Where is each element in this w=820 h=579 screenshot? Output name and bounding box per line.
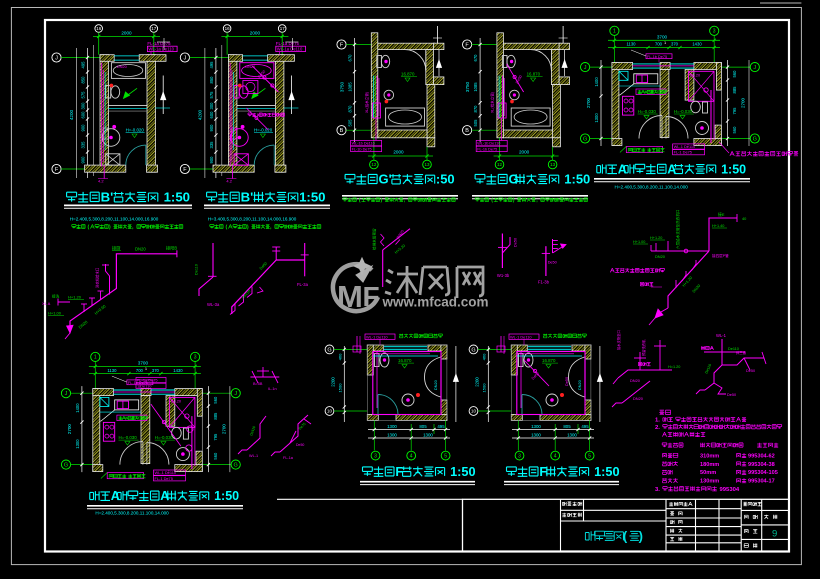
svg-text:4.2: 4.2 [98, 179, 104, 184]
svg-text:1500: 1500 [337, 383, 342, 393]
svg-text:1130: 1130 [107, 368, 117, 373]
svg-text:B0.20: B0.20 [171, 399, 182, 404]
svg-text:De110: De110 [195, 264, 199, 275]
svg-text:870: 870 [348, 105, 353, 113]
svg-text:600: 600 [81, 111, 86, 119]
svg-text:3750: 3750 [340, 81, 345, 92]
svg-text:H=2.400,5.300,8.200,11.100,14.: H=2.400,5.300,8.200,11.100,14.000,16.900 [70, 217, 159, 222]
svg-text:B': B' [101, 190, 114, 205]
svg-text:1:50: 1:50 [564, 172, 590, 187]
svg-text:10: 10 [327, 409, 332, 414]
svg-text:9: 9 [772, 529, 777, 540]
svg-text:预留洗衣机: 预留洗衣机 [641, 339, 646, 356]
svg-text:13: 13 [424, 162, 430, 167]
svg-text:WL-1b De110: WL-1b De110 [477, 142, 500, 146]
svg-text:900: 900 [209, 156, 214, 164]
svg-text:H+1.40: H+1.40 [712, 224, 724, 228]
svg-text:850: 850 [209, 76, 214, 84]
svg-text:接水支管至口: 接水支管至口 [616, 330, 621, 350]
svg-text:六层给水支管至洗衣机口: 六层给水支管至洗衣机口 [675, 209, 680, 249]
svg-text:G: G [509, 172, 519, 187]
svg-text:XL(给水立管): XL(给水立管) [490, 92, 495, 113]
svg-text:De50: De50 [548, 261, 557, 265]
svg-text:1300: 1300 [423, 433, 433, 438]
svg-text:FL-3a: FL-3a [297, 282, 309, 287]
svg-text:495: 495 [581, 424, 589, 429]
svg-text:670: 670 [348, 54, 353, 62]
svg-text:2000: 2000 [519, 150, 530, 155]
svg-text:H+1.00: H+1.00 [48, 311, 62, 316]
svg-text:180mm: 180mm [700, 462, 719, 468]
svg-text:WL-1 De110: WL-1 De110 [510, 334, 532, 339]
svg-text:1300: 1300 [387, 433, 397, 438]
svg-text:XL A: XL A [42, 301, 51, 306]
svg-text:2000: 2000 [121, 31, 132, 36]
svg-text:3: 3 [194, 355, 197, 361]
svg-text:(: ( [623, 528, 628, 543]
svg-text:560: 560 [213, 452, 218, 460]
svg-text:1085: 1085 [473, 82, 478, 92]
svg-text:给排水管预留: 给排水管预留 [372, 228, 377, 250]
svg-text:2.: 2. [655, 425, 660, 431]
svg-text:De50: De50 [296, 443, 304, 447]
svg-text:670: 670 [473, 54, 478, 62]
svg-text:J: J [584, 65, 587, 71]
svg-text:G: G [64, 463, 68, 469]
svg-text:2700: 2700 [67, 424, 72, 435]
svg-text:1:50: 1:50 [214, 489, 239, 503]
svg-text:1300: 1300 [567, 433, 577, 438]
svg-text:17: 17 [151, 26, 157, 31]
svg-text:1400: 1400 [75, 403, 80, 413]
svg-text:10: 10 [471, 409, 476, 414]
svg-text:370: 370 [152, 368, 160, 373]
svg-text:WL-1 De110: WL-1 De110 [155, 470, 177, 475]
svg-text:H=-0.020: H=-0.020 [254, 128, 273, 133]
svg-text:G: G [583, 137, 587, 143]
svg-text:1:50: 1:50 [299, 190, 325, 205]
svg-text:460: 460 [337, 353, 342, 360]
svg-text:De50: De50 [746, 369, 755, 373]
svg-text:W1-3b: W1-3b [497, 273, 510, 278]
svg-text:850: 850 [81, 76, 86, 84]
svg-text:2200: 2200 [474, 377, 479, 387]
svg-text:300: 300 [81, 102, 86, 110]
svg-text:H=-0.030: H=-0.030 [674, 109, 693, 114]
svg-text:FL-1b De75: FL-1b De75 [647, 55, 667, 59]
svg-text:FL-1 De75: FL-1 De75 [674, 150, 692, 155]
svg-text:J: J [184, 56, 187, 62]
svg-text:1:50: 1:50 [164, 190, 190, 205]
svg-text:1300: 1300 [594, 113, 599, 123]
svg-text:3: 3 [713, 29, 716, 35]
svg-text:FL-1 De75: FL-1 De75 [155, 476, 173, 481]
svg-text:16.870: 16.870 [401, 72, 415, 77]
svg-text:885: 885 [213, 412, 218, 420]
svg-text:335: 335 [209, 141, 214, 149]
svg-text:495: 495 [81, 61, 86, 69]
svg-text:H+1.20: H+1.20 [650, 236, 662, 240]
svg-text:16: 16 [225, 26, 231, 31]
svg-text:310mm: 310mm [700, 453, 719, 459]
svg-text:505: 505 [348, 119, 353, 127]
svg-text:2200: 2200 [330, 377, 335, 387]
svg-text:DN20: DN20 [655, 254, 666, 259]
svg-text:A: A [160, 489, 169, 503]
svg-text:1430: 1430 [692, 42, 702, 47]
svg-text:1130: 1130 [626, 42, 636, 47]
svg-text:接洗: 接洗 [52, 294, 60, 299]
svg-text:2700: 2700 [741, 97, 746, 108]
svg-text:1: 1 [613, 29, 616, 35]
svg-text:XL(给水立管): XL(给水立管) [364, 92, 369, 113]
svg-text:995304-38: 995304-38 [748, 462, 775, 468]
svg-text:FL-1a: FL-1a [283, 456, 294, 460]
svg-text:1500: 1500 [481, 383, 486, 393]
svg-text:1 De110: 1 De110 [137, 383, 152, 388]
svg-text:WL-3a: WL-3a [207, 302, 220, 307]
svg-text:900: 900 [209, 124, 214, 132]
svg-text:): ) [109, 224, 111, 230]
svg-text:3: 3 [518, 453, 521, 459]
svg-text:16.870: 16.870 [398, 358, 412, 363]
svg-text:M: M [337, 279, 363, 314]
svg-text:795: 795 [213, 433, 218, 441]
svg-text:1:50: 1:50 [450, 464, 476, 479]
svg-text:H=-0.030: H=-0.030 [638, 109, 657, 114]
svg-text:995304-17: 995304-17 [748, 479, 775, 485]
svg-text:3700: 3700 [138, 360, 149, 365]
svg-text:WL-1: WL-1 [249, 454, 258, 458]
svg-text:505: 505 [473, 119, 478, 127]
svg-text:805: 805 [419, 424, 427, 429]
svg-text:A: A [111, 489, 120, 503]
svg-text:12: 12 [371, 162, 377, 167]
svg-text:DN20: DN20 [630, 378, 641, 383]
svg-text:1300: 1300 [531, 433, 541, 438]
svg-text:H=-0.030: H=-0.030 [119, 435, 138, 440]
svg-text:H+1.20: H+1.20 [68, 295, 82, 300]
svg-text:16: 16 [96, 26, 102, 31]
svg-text:): ) [247, 224, 249, 230]
svg-text:WL-1a De110: WL-1a De110 [148, 47, 174, 52]
svg-text:575: 575 [209, 91, 214, 99]
svg-text:995304-105: 995304-105 [748, 470, 778, 476]
svg-text:870: 870 [473, 105, 478, 113]
svg-text:2700: 2700 [222, 424, 227, 435]
svg-text:1430: 1430 [173, 368, 183, 373]
svg-text:C: C [657, 90, 661, 95]
svg-text:900: 900 [81, 124, 86, 132]
svg-text:50mm: 50mm [700, 470, 716, 476]
svg-text:700: 700 [136, 368, 144, 373]
svg-text:WL-1b De110: WL-1b De110 [352, 142, 375, 146]
svg-text:335: 335 [81, 141, 86, 149]
svg-text:300: 300 [209, 102, 214, 110]
svg-text:B: B [465, 128, 469, 134]
svg-text:4: 4 [554, 453, 557, 459]
svg-text:13: 13 [550, 162, 556, 167]
svg-text:J: J [753, 65, 756, 71]
svg-text:H=2.400,5.300,8.200,11.100,14.: H=2.400,5.300,8.200,11.100,14.000 [615, 185, 689, 190]
svg-text:FL-1a De75: FL-1a De75 [137, 378, 158, 383]
svg-text:): ) [639, 528, 643, 543]
svg-text:1300: 1300 [387, 424, 397, 429]
svg-text:J: J [65, 391, 68, 397]
svg-text:H=2.400,5.300,8.200,11.100,14.: H=2.400,5.300,8.200,11.100,14.000 [95, 511, 169, 516]
svg-text:805: 805 [563, 424, 571, 429]
svg-text:600: 600 [209, 111, 214, 119]
svg-text:885: 885 [732, 86, 737, 94]
svg-text:B': B' [241, 190, 254, 205]
svg-text:WL-1a De110: WL-1a De110 [277, 47, 303, 52]
svg-text:1:50: 1:50 [721, 162, 746, 176]
svg-text:700: 700 [655, 42, 663, 47]
svg-text:4.2: 4.2 [226, 179, 232, 184]
svg-text:2000: 2000 [250, 31, 261, 36]
svg-text:): ) [381, 198, 383, 204]
svg-text:): ) [513, 198, 515, 204]
svg-text:G: G [471, 347, 475, 353]
svg-text:575: 575 [81, 91, 86, 99]
svg-text:DN20: DN20 [117, 65, 127, 69]
svg-text:3: 3 [374, 453, 377, 459]
svg-text:5: 5 [444, 453, 447, 459]
svg-text::50: :50 [436, 172, 455, 187]
svg-text:C: C [138, 416, 142, 421]
svg-text:2000: 2000 [393, 150, 404, 155]
svg-text:FL-1b De75: FL-1b De75 [477, 148, 497, 152]
svg-text:J: J [55, 56, 58, 62]
svg-text:2700: 2700 [586, 97, 591, 108]
svg-text:17: 17 [280, 26, 286, 31]
svg-text:G: G [753, 137, 757, 143]
svg-text:560: 560 [732, 70, 737, 78]
svg-text:3750: 3750 [465, 81, 470, 92]
svg-text:WL-1 De110: WL-1 De110 [366, 334, 388, 339]
svg-text:495: 495 [437, 424, 445, 429]
svg-text:G: G [234, 463, 238, 469]
svg-text:FL-1b De75: FL-1b De75 [352, 148, 372, 152]
svg-text:斜三通: 斜三通 [736, 350, 747, 355]
svg-text:(: ( [88, 224, 90, 230]
svg-text:1300: 1300 [75, 439, 80, 449]
svg-text:460: 460 [481, 353, 486, 360]
svg-text:F1-3b: F1-3b [538, 280, 550, 285]
svg-text:1:50: 1:50 [594, 464, 620, 479]
svg-text:DN20: DN20 [633, 396, 644, 401]
svg-text:370: 370 [671, 42, 679, 47]
svg-text:1.: 1. [655, 417, 660, 423]
svg-text:4200: 4200 [69, 109, 74, 120]
svg-text:16.870: 16.870 [542, 358, 556, 363]
svg-text:12: 12 [497, 162, 503, 167]
svg-text:IL-1n: IL-1n [268, 387, 277, 391]
svg-text:洗衣机给水口: 洗衣机给水口 [95, 268, 100, 288]
svg-text:DN20: DN20 [434, 380, 438, 390]
svg-text:接阳B: 接阳B [166, 245, 177, 252]
svg-text:F: F [539, 464, 547, 479]
svg-text:De50: De50 [565, 377, 569, 386]
svg-text:3700: 3700 [657, 34, 668, 39]
svg-text:接四层P管: 接四层P管 [712, 253, 729, 258]
svg-text:www.mfcad.com: www.mfcad.com [382, 295, 489, 310]
svg-text:De50: De50 [514, 238, 518, 247]
svg-text:995304-62: 995304-62 [748, 453, 775, 459]
svg-text:(: ( [491, 198, 493, 204]
svg-text:B=5B: B=5B [253, 382, 263, 386]
svg-text:G: G [327, 347, 331, 353]
svg-text:560: 560 [213, 396, 218, 404]
svg-text:130mm: 130mm [700, 479, 719, 485]
svg-text:F: F [363, 281, 380, 312]
svg-text:J: J [234, 391, 237, 397]
svg-text:H=-0.020: H=-0.020 [126, 128, 145, 133]
svg-text:1300: 1300 [531, 424, 541, 429]
svg-text:495: 495 [209, 61, 214, 69]
svg-text:De50: De50 [727, 393, 736, 397]
svg-text:WL-1 De110: WL-1 De110 [674, 144, 696, 149]
svg-text:560: 560 [732, 126, 737, 134]
svg-text:1085: 1085 [348, 82, 353, 92]
svg-text:4200: 4200 [197, 109, 202, 120]
svg-text:A: A [618, 162, 627, 176]
svg-text:接E: 接E [718, 212, 725, 217]
svg-text:H+1.00: H+1.00 [633, 240, 645, 244]
svg-text:DN20: DN20 [135, 247, 146, 252]
svg-text:3.: 3. [655, 487, 660, 493]
svg-text:H=1.20: H=1.20 [668, 365, 680, 369]
svg-text:H=-0.030: H=-0.030 [155, 435, 174, 440]
svg-text:16.870: 16.870 [527, 72, 541, 77]
svg-text:4: 4 [410, 453, 413, 459]
svg-text:995304: 995304 [720, 487, 740, 493]
svg-text:WL-1: WL-1 [716, 333, 727, 338]
svg-text:A: A [667, 162, 676, 176]
svg-text:H=3.400,5.300,8.200,11.100,14.: H=3.400,5.300,8.200,11.100,14.000,16.900 [208, 217, 297, 222]
svg-text:F: F [395, 464, 403, 479]
svg-text:K: K [125, 416, 129, 421]
svg-text:900: 900 [81, 156, 86, 164]
svg-text:G': G' [379, 172, 392, 187]
svg-text:5: 5 [588, 453, 591, 459]
svg-text:(: ( [359, 198, 361, 204]
svg-text:DN20: DN20 [578, 380, 582, 390]
svg-text:1: 1 [94, 355, 97, 361]
svg-text:795: 795 [732, 107, 737, 115]
svg-text:1400: 1400 [594, 77, 599, 87]
svg-text:B: B [340, 128, 344, 134]
svg-text:B0.20: B0.20 [690, 73, 701, 78]
svg-text:K: K [645, 90, 649, 95]
svg-text:(: ( [226, 224, 228, 230]
